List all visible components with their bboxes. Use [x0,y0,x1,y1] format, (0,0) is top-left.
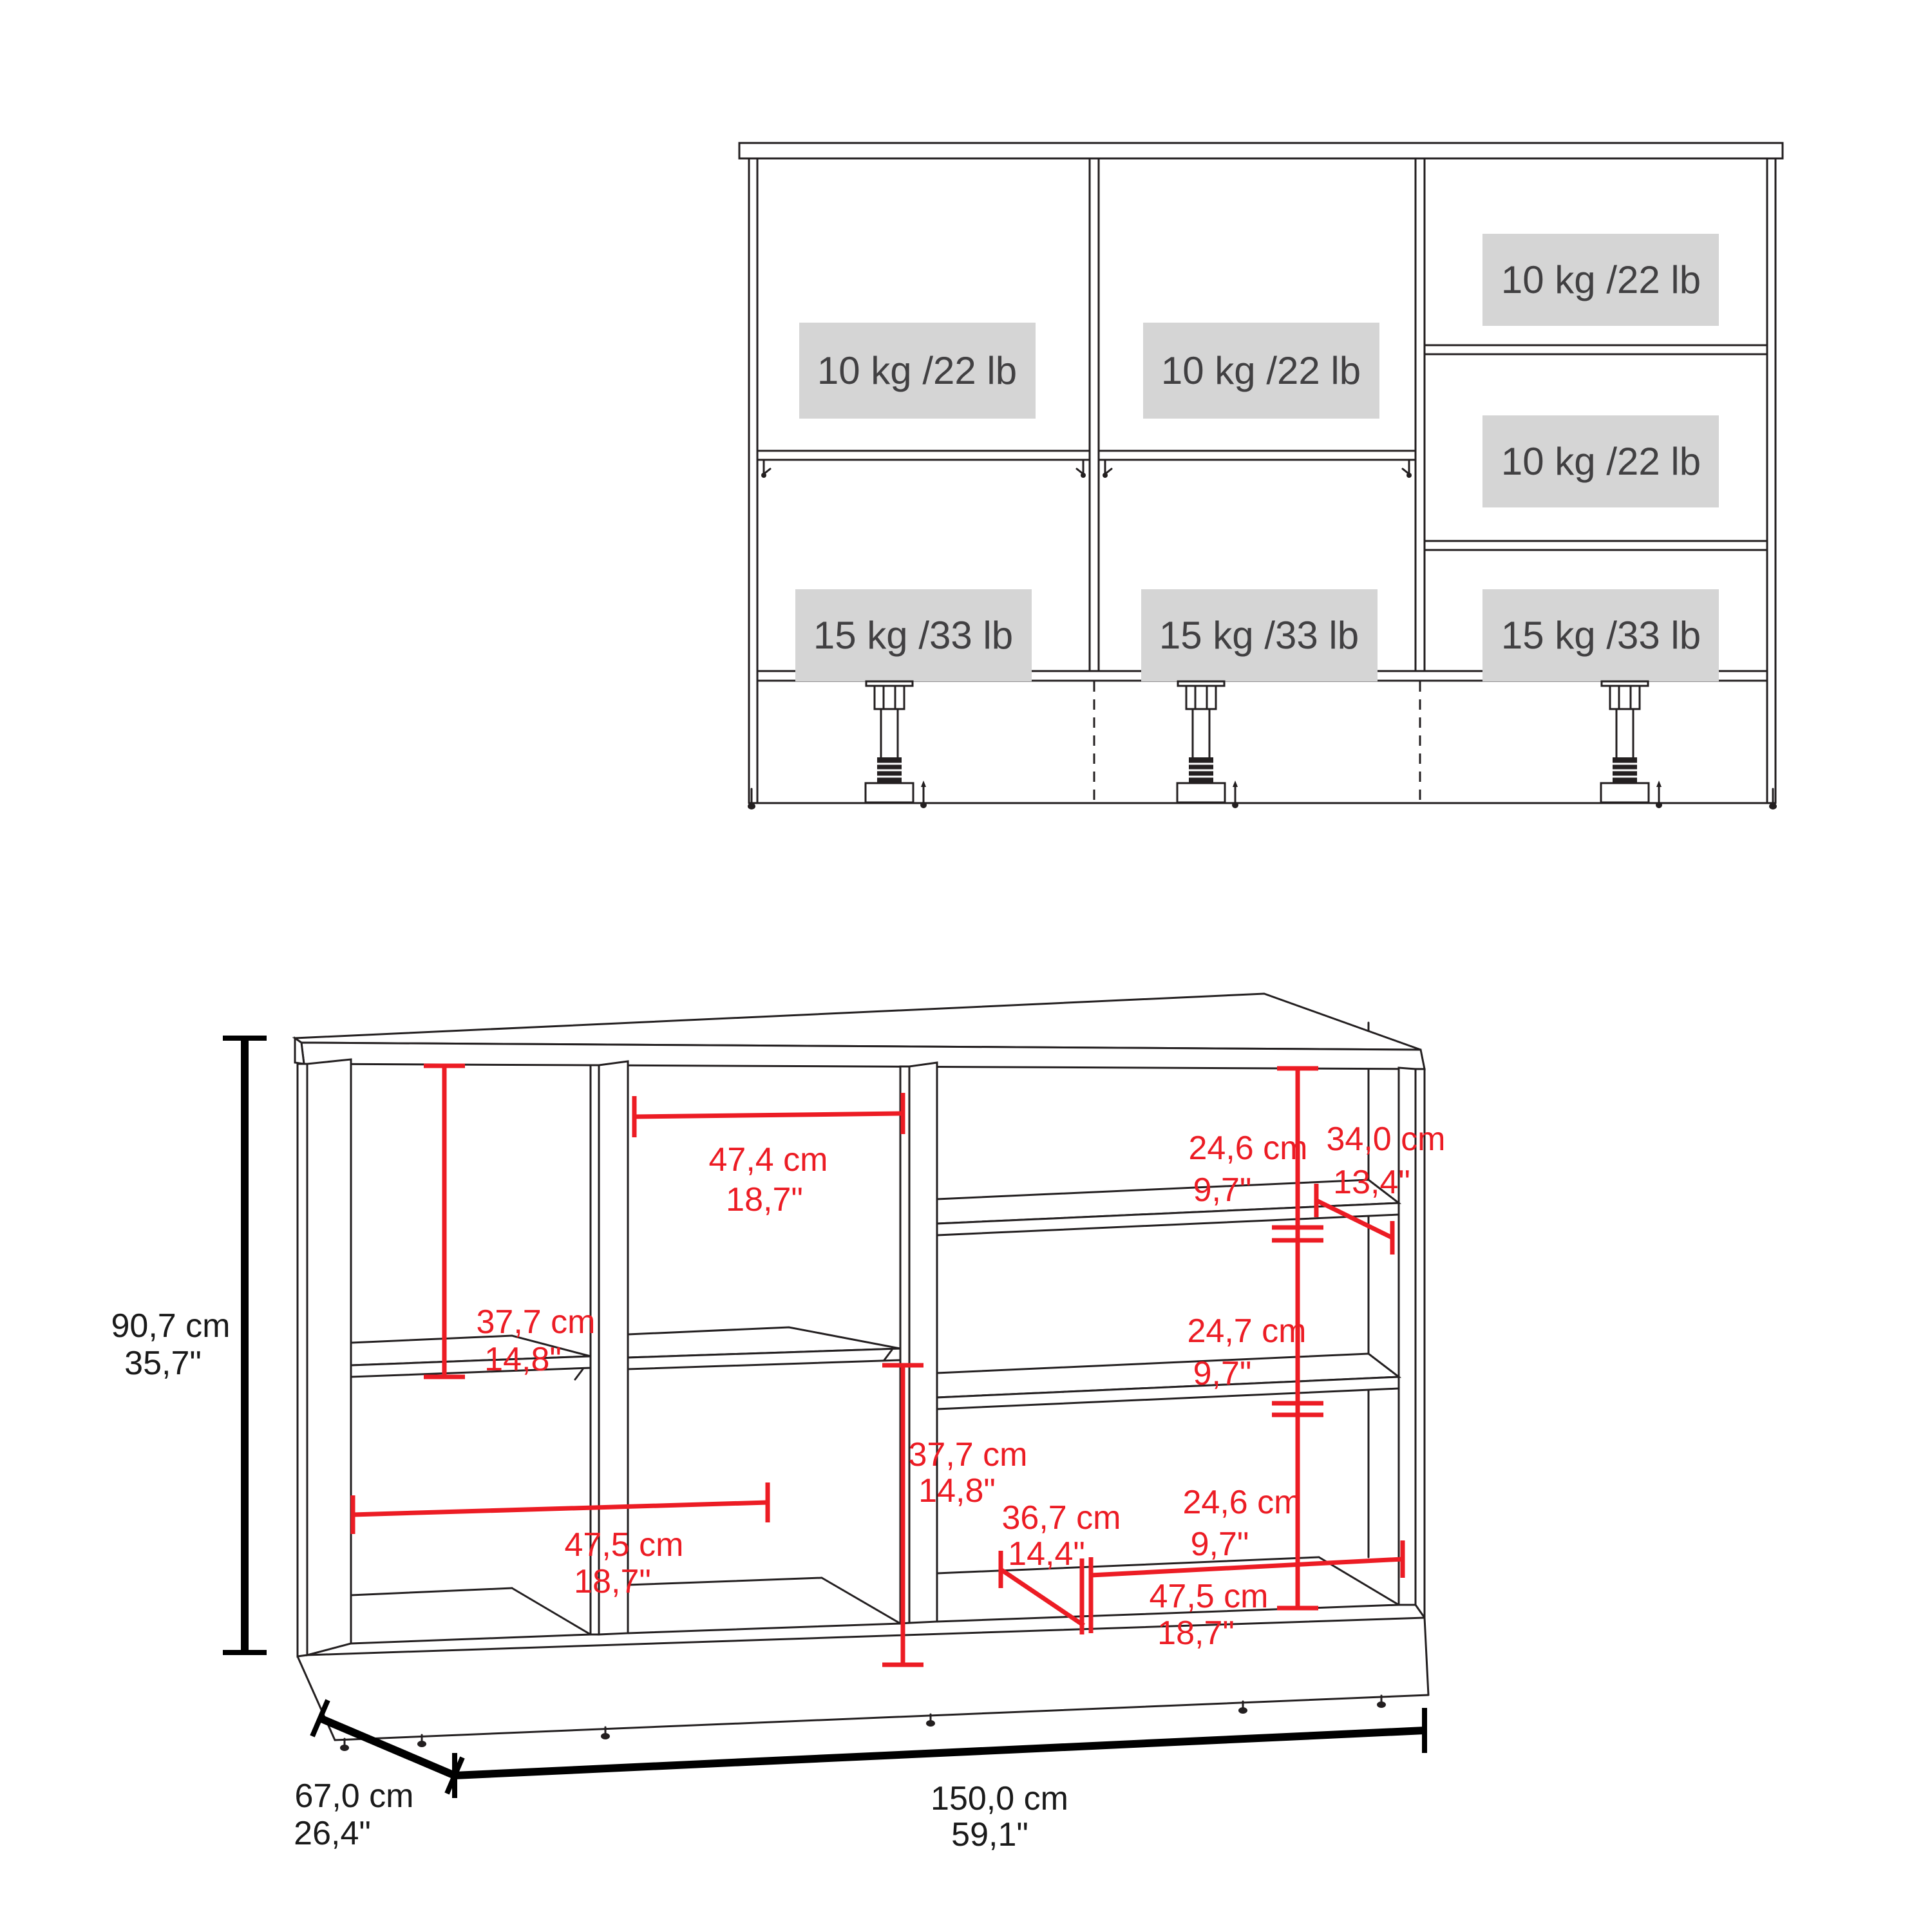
dim-left-upper-in: 14,8" [484,1341,562,1378]
dim-right-width-in: 18,7" [1157,1615,1235,1652]
capacity-box-middle-lower: 15 kg /33 lb [1141,589,1378,681]
dim-depth-cm: 67,0 cm [295,1777,414,1815]
capacity-label: 15 kg /33 lb [1159,614,1359,657]
capacity-label: 10 kg /22 lb [1161,349,1361,392]
dim-middle-top-cm: 47,4 cm [709,1141,828,1179]
dim-right-bottom-cm: 24,6 cm [1183,1484,1302,1521]
front-top-board [739,143,1783,158]
dim-middle-depth-in: 14,4" [1008,1535,1085,1573]
capacity-label: 10 kg /22 lb [1501,440,1701,483]
iso-left-panel-edge [298,1064,307,1656]
furniture-dimension-diagram: 10 kg /22 lb 10 kg /22 lb 10 kg /22 lb 1… [0,0,1932,1932]
dim-height-in: 35,7" [124,1345,202,1382]
dim-middle-top-in: 18,7" [726,1181,803,1218]
capacity-label: 10 kg /22 lb [1501,258,1701,301]
dim-right-width-cm: 47,5 cm [1150,1578,1269,1615]
capacity-box-middle-upper: 10 kg /22 lb [1143,323,1379,419]
dim-left-bottom-cm: 47,5 cm [565,1526,684,1564]
dim-right-bottom-in: 9,7" [1191,1526,1249,1563]
dim-middle-lower-in: 14,8" [918,1472,996,1510]
dim-width-in: 59,1" [951,1816,1028,1853]
capacity-label: 15 kg /33 lb [1501,614,1701,657]
capacity-box-left-upper: 10 kg /22 lb [799,323,1036,419]
dim-middle-lower-cm: 37,7 cm [909,1436,1028,1473]
dim-right-depth-cm: 34,0 cm [1327,1121,1446,1158]
capacity-box-right-top: 10 kg /22 lb [1482,234,1719,326]
capacity-label: 15 kg /33 lb [813,614,1013,657]
capacity-box-right-middle: 10 kg /22 lb [1482,415,1719,507]
dim-right-top-cm: 24,6 cm [1189,1130,1308,1167]
dim-right-mid-cm: 24,7 cm [1188,1312,1307,1350]
iso-left-panel-inner [307,1059,351,1655]
dim-depth-in: 26,4" [294,1815,371,1852]
dim-middle-depth-cm: 36,7 cm [1002,1499,1121,1537]
dim-right-top-in: 9,7" [1193,1171,1252,1209]
dim-width-cm: 150,0 cm [931,1780,1068,1817]
dim-height-cm: 90,7 cm [111,1307,231,1345]
capacity-box-right-bottom: 15 kg /33 lb [1482,589,1719,681]
dim-right-depth-in: 13,4" [1333,1164,1410,1201]
dim-left-upper-cm: 37,7 cm [477,1303,596,1341]
capacity-label: 10 kg /22 lb [817,349,1017,392]
dim-left-bottom-in: 18,7" [574,1563,651,1600]
capacity-box-left-lower: 15 kg /33 lb [795,589,1032,681]
dim-right-mid-in: 9,7" [1193,1355,1252,1392]
